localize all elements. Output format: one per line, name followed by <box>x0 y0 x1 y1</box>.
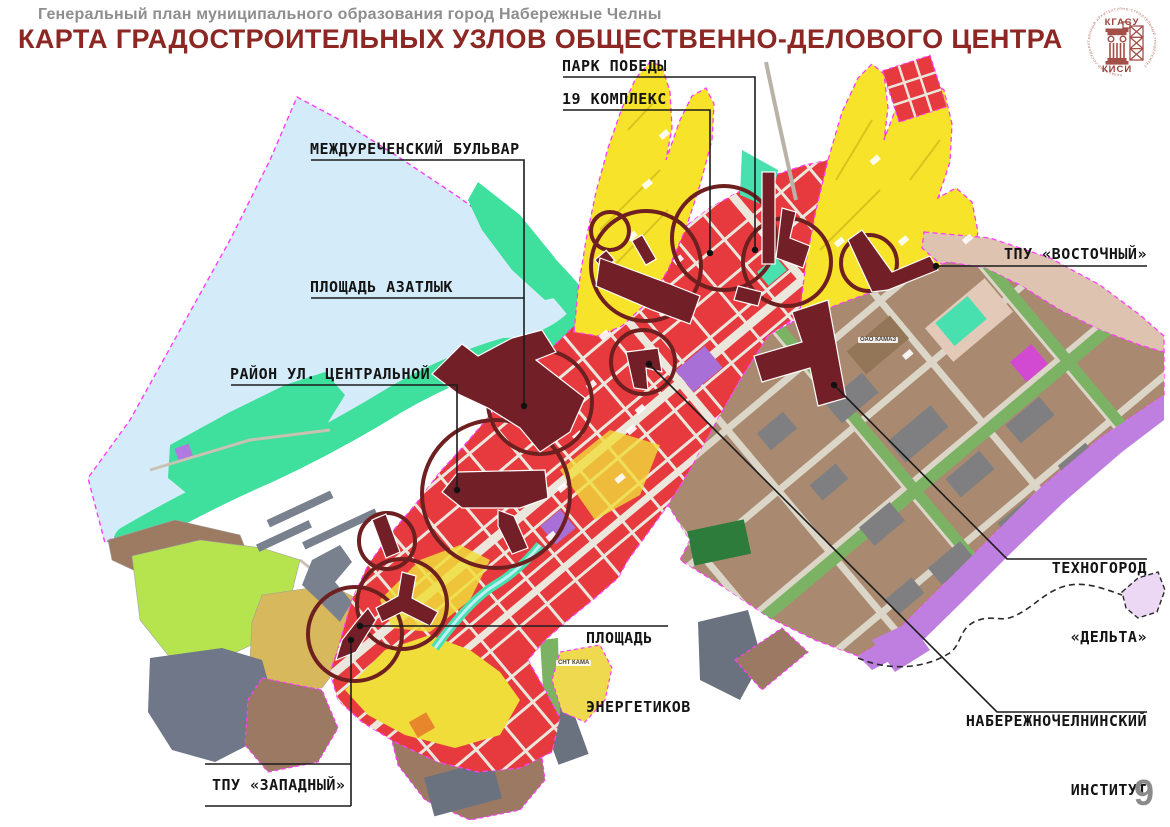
label-technogorod-delta: ТЕХНОГОРОД «ДЕЛЬТА» <box>897 511 1147 672</box>
label-zapadny: ТПУ «ЗАПАДНЫЙ» <box>212 776 345 794</box>
label-institute-line1: НАБЕРЕЖНОЧЕЛНИНСКИЙ <box>857 710 1147 733</box>
university-logo: КАЗАНСКИЙ ГОСУДАРСТВЕННЫЙ АРХИТЕКТУРНО-С… <box>1082 2 1162 82</box>
label-oao-kamaz: ОАО КАМАЗ <box>858 337 898 343</box>
logo-bottom-text: КИСИ <box>1102 64 1132 75</box>
label-vostochny: ТПУ «ВОСТОЧНЫЙ» <box>897 245 1147 263</box>
page-subtitle: Генеральный план муниципального образова… <box>38 6 662 24</box>
label-park-pobedy: ПАРК ПОБЕДЫ <box>562 57 667 75</box>
page-title: КАРТА ГРАДОСТРОИТЕЛЬНЫХ УЗЛОВ ОБЩЕСТВЕНН… <box>18 24 1063 55</box>
label-institute: НАБЕРЕЖНОЧЕЛНИНСКИЙ ИНСТИТУТ <box>857 664 1147 825</box>
label-delta-line1: ТЕХНОГОРОД <box>897 557 1147 580</box>
page-number: 9 <box>1134 772 1154 814</box>
label-azatlyk: ПЛОЩАДЬ АЗАТЛЫК <box>310 278 453 296</box>
label-tsentralnoy: РАЙОН УЛ. ЦЕНТРАЛЬНОЙ <box>230 365 430 383</box>
label-institute-line2: ИНСТИТУТ <box>857 779 1147 802</box>
label-19-kompleks: 19 КОМПЛЕКС <box>562 90 667 108</box>
column-icon <box>1106 29 1128 64</box>
label-energetikov-line1: ПЛОЩАДЬ <box>586 627 691 650</box>
label-energetikov: ПЛОЩАДЬ ЭНЕРГЕТИКОВ <box>586 581 691 742</box>
label-energetikov-line2: ЭНЕРГЕТИКОВ <box>586 696 691 719</box>
label-mezhdurechensky: МЕЖДУРЕЧЕНСКИЙ БУЛЬВАР <box>310 140 520 158</box>
label-delta-line2: «ДЕЛЬТА» <box>897 626 1147 649</box>
label-snt-kama: СНТ КАМА <box>556 660 591 666</box>
